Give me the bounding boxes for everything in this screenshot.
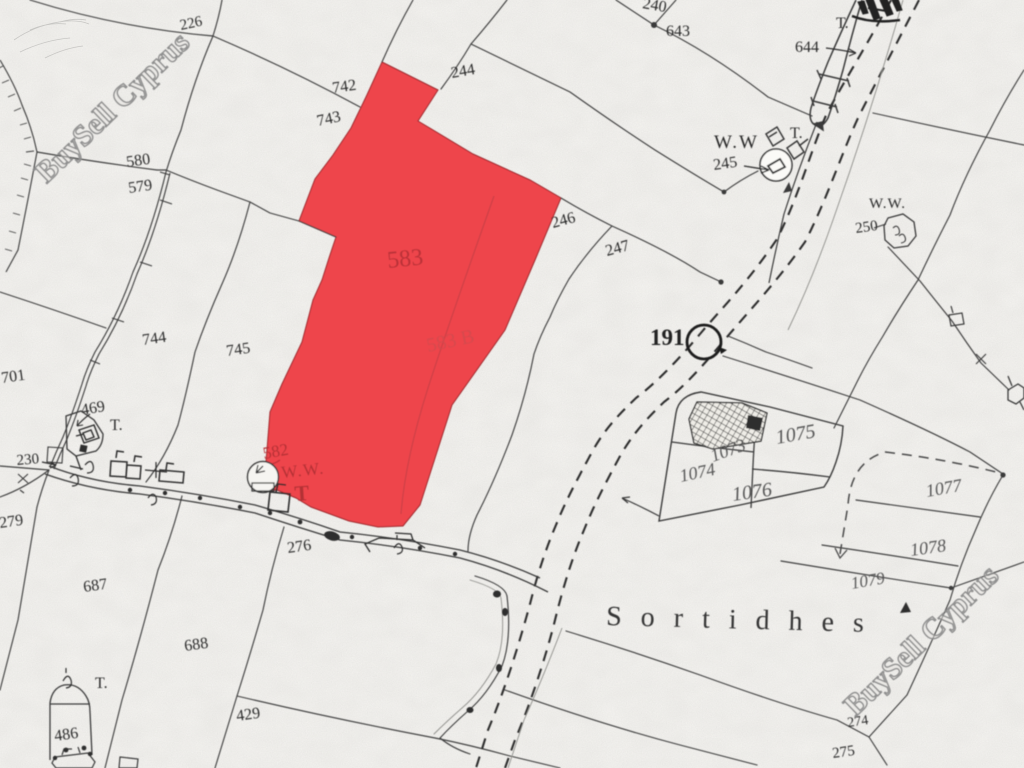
svg-text:230: 230 <box>16 451 40 469</box>
svg-text:279: 279 <box>0 512 24 532</box>
svg-text:643: 643 <box>666 23 690 40</box>
svg-text:T.: T. <box>110 417 123 434</box>
svg-text:T.: T. <box>790 125 803 142</box>
svg-text:191: 191 <box>650 325 685 350</box>
svg-text:742: 742 <box>331 77 357 97</box>
svg-text:T: T <box>294 480 311 506</box>
svg-text:275: 275 <box>831 743 856 762</box>
svg-text:429: 429 <box>235 705 261 725</box>
svg-text:245: 245 <box>712 154 738 174</box>
svg-text:688: 688 <box>183 635 209 655</box>
svg-text:644: 644 <box>795 39 819 56</box>
svg-text:583: 583 <box>386 244 425 274</box>
svg-text:W.W.: W.W. <box>869 196 906 212</box>
svg-text:T.: T. <box>836 15 849 32</box>
svg-text:579: 579 <box>127 177 153 197</box>
svg-text:745: 745 <box>225 340 251 360</box>
svg-text:276: 276 <box>286 537 312 557</box>
svg-text:486: 486 <box>53 725 79 745</box>
svg-text:580: 580 <box>125 151 151 171</box>
svg-text:T.: T. <box>95 675 108 692</box>
svg-text:250: 250 <box>854 218 879 237</box>
svg-text:687: 687 <box>82 576 108 596</box>
svg-text:744: 744 <box>141 329 167 349</box>
svg-text:701: 701 <box>0 367 26 387</box>
svg-text:W.W: W.W <box>714 132 759 153</box>
